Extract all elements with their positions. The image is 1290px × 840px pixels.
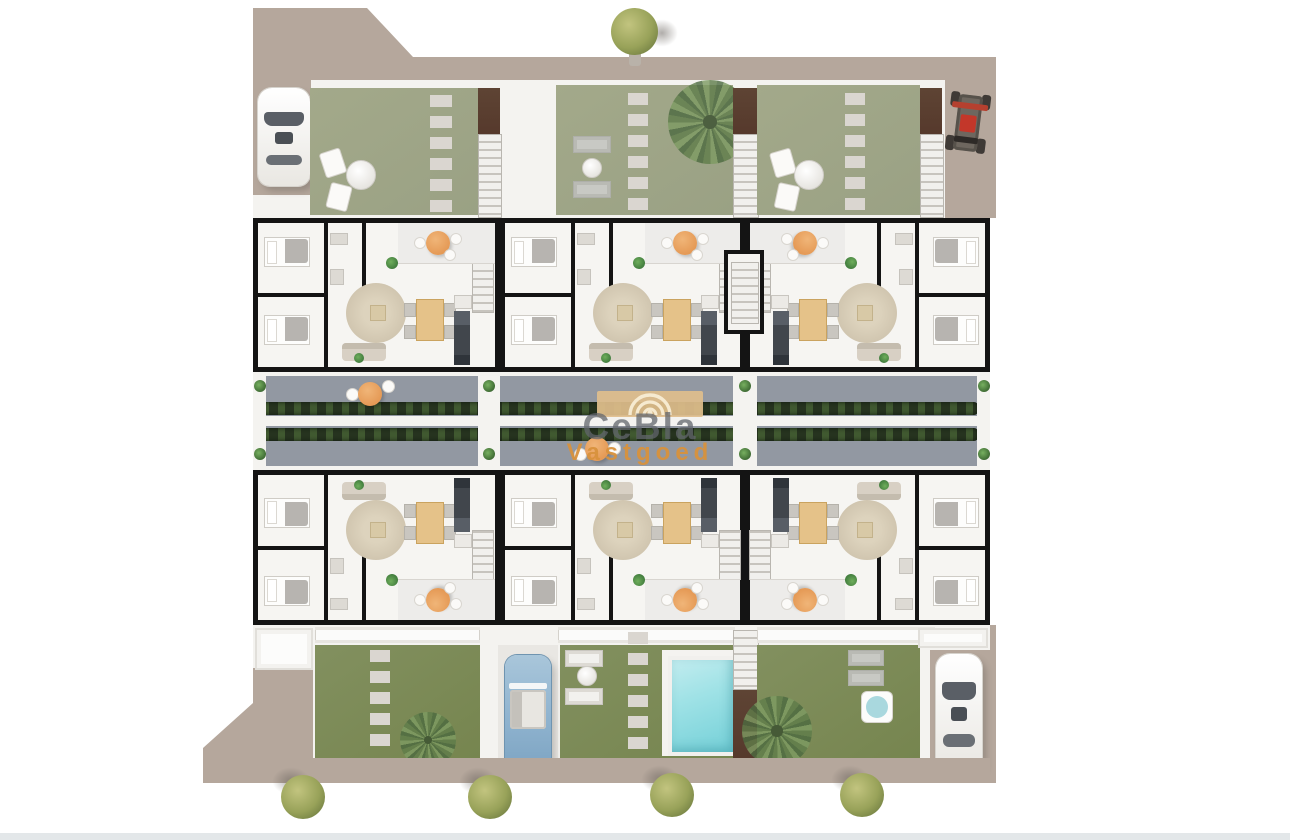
interior-wall <box>877 552 881 620</box>
interior-wall <box>362 223 366 291</box>
interior-wall <box>258 293 324 297</box>
terrace-chair <box>414 237 426 249</box>
carport-canopy <box>918 628 988 648</box>
stairwell-steps <box>731 262 759 324</box>
unit-stairs <box>472 263 494 313</box>
shrub <box>739 448 751 460</box>
stepping-stones <box>628 93 648 215</box>
terrace-chair <box>817 237 829 249</box>
street-tree <box>281 775 325 819</box>
bed <box>511 315 557 345</box>
toilet <box>577 558 591 574</box>
fridge <box>701 295 719 309</box>
apartment-unit-3 <box>745 218 990 372</box>
pergola-strip <box>757 627 935 643</box>
terrace-chair <box>661 594 673 606</box>
apartment-unit-4 <box>253 470 500 625</box>
dining-chair <box>827 325 839 339</box>
garden-side-table <box>582 158 602 178</box>
dining-chair <box>651 526 663 540</box>
street-tree <box>840 773 884 817</box>
bed <box>511 237 557 267</box>
shrub <box>483 380 495 392</box>
car-windshield <box>264 112 304 127</box>
interior-wall <box>609 223 613 291</box>
stepping-stones <box>845 93 865 215</box>
dining-chair <box>827 303 839 317</box>
kitchen-counter <box>773 311 789 365</box>
terrace-chair <box>781 233 793 245</box>
stairwell-shaft-top <box>724 250 764 334</box>
fridge <box>701 534 719 548</box>
interior-wall <box>324 475 328 620</box>
bathroom-sink <box>577 233 595 245</box>
shrub <box>254 448 266 460</box>
fridge <box>454 534 472 548</box>
toilet <box>899 558 913 574</box>
walkway-round-table <box>358 382 382 406</box>
hot-tub-water <box>866 696 888 718</box>
interior-wall <box>571 223 575 367</box>
bed <box>264 315 310 345</box>
bed <box>264 498 310 528</box>
sun-lounger <box>565 688 603 705</box>
interior-wall <box>609 552 613 620</box>
terrace-chair <box>450 233 462 245</box>
sofa <box>342 343 386 361</box>
bed <box>933 315 979 345</box>
sun-lounger <box>573 136 611 153</box>
dining-table <box>799 502 827 544</box>
dining-chair <box>404 526 416 540</box>
apartment-unit-1 <box>253 218 500 372</box>
floor-plan-render: CeBla Vastgoed <box>0 0 1290 840</box>
terrace-chair <box>691 249 703 261</box>
planter-box <box>478 88 500 134</box>
sofa <box>342 482 386 500</box>
interior-wall <box>505 293 571 297</box>
fridge <box>771 295 789 309</box>
car-windshield <box>942 682 977 700</box>
pergola-strip <box>315 627 480 643</box>
bed <box>511 576 557 606</box>
terrace-chair <box>787 249 799 261</box>
terrace-chair <box>697 233 709 245</box>
toilet <box>899 269 913 285</box>
hot-tub <box>862 692 892 722</box>
terrace-chair <box>414 594 426 606</box>
watermark-word: Vastgoed <box>540 439 740 465</box>
terrace-chair <box>697 598 709 610</box>
dining-table <box>663 299 691 341</box>
sofa <box>589 343 633 361</box>
garden-stairs <box>920 134 944 218</box>
walkway-chair <box>382 380 395 393</box>
garden-fountain <box>577 666 597 686</box>
unit-stairs <box>719 530 741 580</box>
terrace-chair <box>661 237 673 249</box>
interior-wall <box>571 475 575 620</box>
car-open-cabin <box>510 690 547 729</box>
coffee-table <box>617 305 633 321</box>
shrub <box>483 448 495 460</box>
street-tree <box>650 773 694 817</box>
potted-plant <box>879 353 889 363</box>
apartment-unit-2 <box>500 218 745 372</box>
garden-stairs <box>478 134 502 218</box>
interior-wall <box>362 552 366 620</box>
car-rear-window <box>266 155 301 166</box>
dining-chair <box>651 303 663 317</box>
white-car-bottom-right <box>936 654 982 772</box>
coffee-table <box>370 522 386 538</box>
dining-chair <box>404 325 416 339</box>
terrace-chair <box>817 594 829 606</box>
dining-table <box>663 502 691 544</box>
potted-plant <box>354 353 364 363</box>
potted-plant <box>879 480 889 490</box>
bathroom-sink <box>577 598 595 610</box>
bed <box>511 498 557 528</box>
blue-convertible-car <box>505 655 551 771</box>
dining-table <box>416 502 444 544</box>
shrub <box>978 380 990 392</box>
potted-plant <box>386 574 398 586</box>
shrub <box>739 380 751 392</box>
potted-plant <box>354 480 364 490</box>
terrace-chair <box>781 598 793 610</box>
kitchen-counter <box>454 311 470 365</box>
sun-lounger <box>848 670 884 686</box>
road-bottom-lane <box>253 758 990 783</box>
dining-chair <box>651 504 663 518</box>
buggy-seat <box>959 114 977 133</box>
potted-plant <box>845 574 857 586</box>
dining-chair <box>404 303 416 317</box>
coffee-table <box>617 522 633 538</box>
bed <box>264 576 310 606</box>
kitchen-counter <box>701 311 717 365</box>
interior-wall <box>505 546 571 550</box>
dining-table <box>799 299 827 341</box>
apartment-unit-5 <box>500 470 745 625</box>
garden-stairs <box>733 630 759 690</box>
car-roof <box>275 132 294 144</box>
kitchen-counter <box>773 478 789 532</box>
kitchen-counter <box>454 478 470 532</box>
coffee-table <box>857 522 873 538</box>
carport-canopy <box>255 628 313 670</box>
bathroom-sink <box>895 598 913 610</box>
stepping-stones <box>430 95 452 213</box>
bed <box>933 498 979 528</box>
planter-box <box>733 88 757 134</box>
fridge <box>771 534 789 548</box>
dining-table <box>416 299 444 341</box>
potted-plant <box>633 574 645 586</box>
kitchen-counter <box>701 478 717 532</box>
unit-stairs <box>472 530 494 580</box>
car-windshield <box>509 683 548 689</box>
street-tree <box>468 775 512 819</box>
potted-plant <box>601 480 611 490</box>
shrub <box>978 448 990 460</box>
car-roof <box>951 707 968 721</box>
potted-plant <box>633 257 645 269</box>
bed <box>933 237 979 267</box>
interior-wall <box>324 223 328 367</box>
terrace-chair <box>444 249 456 261</box>
shrub <box>254 380 266 392</box>
terrace-chair <box>787 582 799 594</box>
terrace-chair <box>450 598 462 610</box>
sofa <box>589 482 633 500</box>
terrace-chair <box>444 582 456 594</box>
coffee-table <box>857 305 873 321</box>
dining-chair <box>404 504 416 518</box>
terrace-chair <box>691 582 703 594</box>
interior-wall <box>877 223 881 291</box>
white-car-top-left <box>258 88 310 186</box>
unit-stairs <box>749 530 771 580</box>
toilet <box>330 558 344 574</box>
potted-plant <box>845 257 857 269</box>
bed <box>933 576 979 606</box>
palm-tree <box>742 696 812 766</box>
dining-chair <box>827 526 839 540</box>
swimming-pool <box>668 656 738 756</box>
coffee-table <box>370 305 386 321</box>
toilet <box>577 269 591 285</box>
potted-plant <box>386 257 398 269</box>
dining-chair <box>827 504 839 518</box>
car-rear-window <box>943 734 974 747</box>
street-tree-top <box>611 8 658 55</box>
sun-lounger <box>573 181 611 198</box>
sun-lounger <box>565 650 603 667</box>
bottom-curb-strip <box>0 833 1290 840</box>
garden-stairs <box>733 134 759 218</box>
fridge <box>454 295 472 309</box>
bed <box>264 237 310 267</box>
dining-chair <box>651 325 663 339</box>
interior-wall <box>258 546 324 550</box>
interior-wall <box>919 546 985 550</box>
potted-plant <box>601 353 611 363</box>
bathroom-sink <box>895 233 913 245</box>
apartment-unit-6 <box>745 470 990 625</box>
sun-lounger <box>848 650 884 666</box>
bathroom-sink <box>330 598 348 610</box>
stepping-stones <box>628 632 648 756</box>
interior-wall <box>919 293 985 297</box>
toilet <box>330 269 344 285</box>
stepping-stones <box>370 650 390 755</box>
bathroom-sink <box>330 233 348 245</box>
planter-box <box>920 88 942 134</box>
